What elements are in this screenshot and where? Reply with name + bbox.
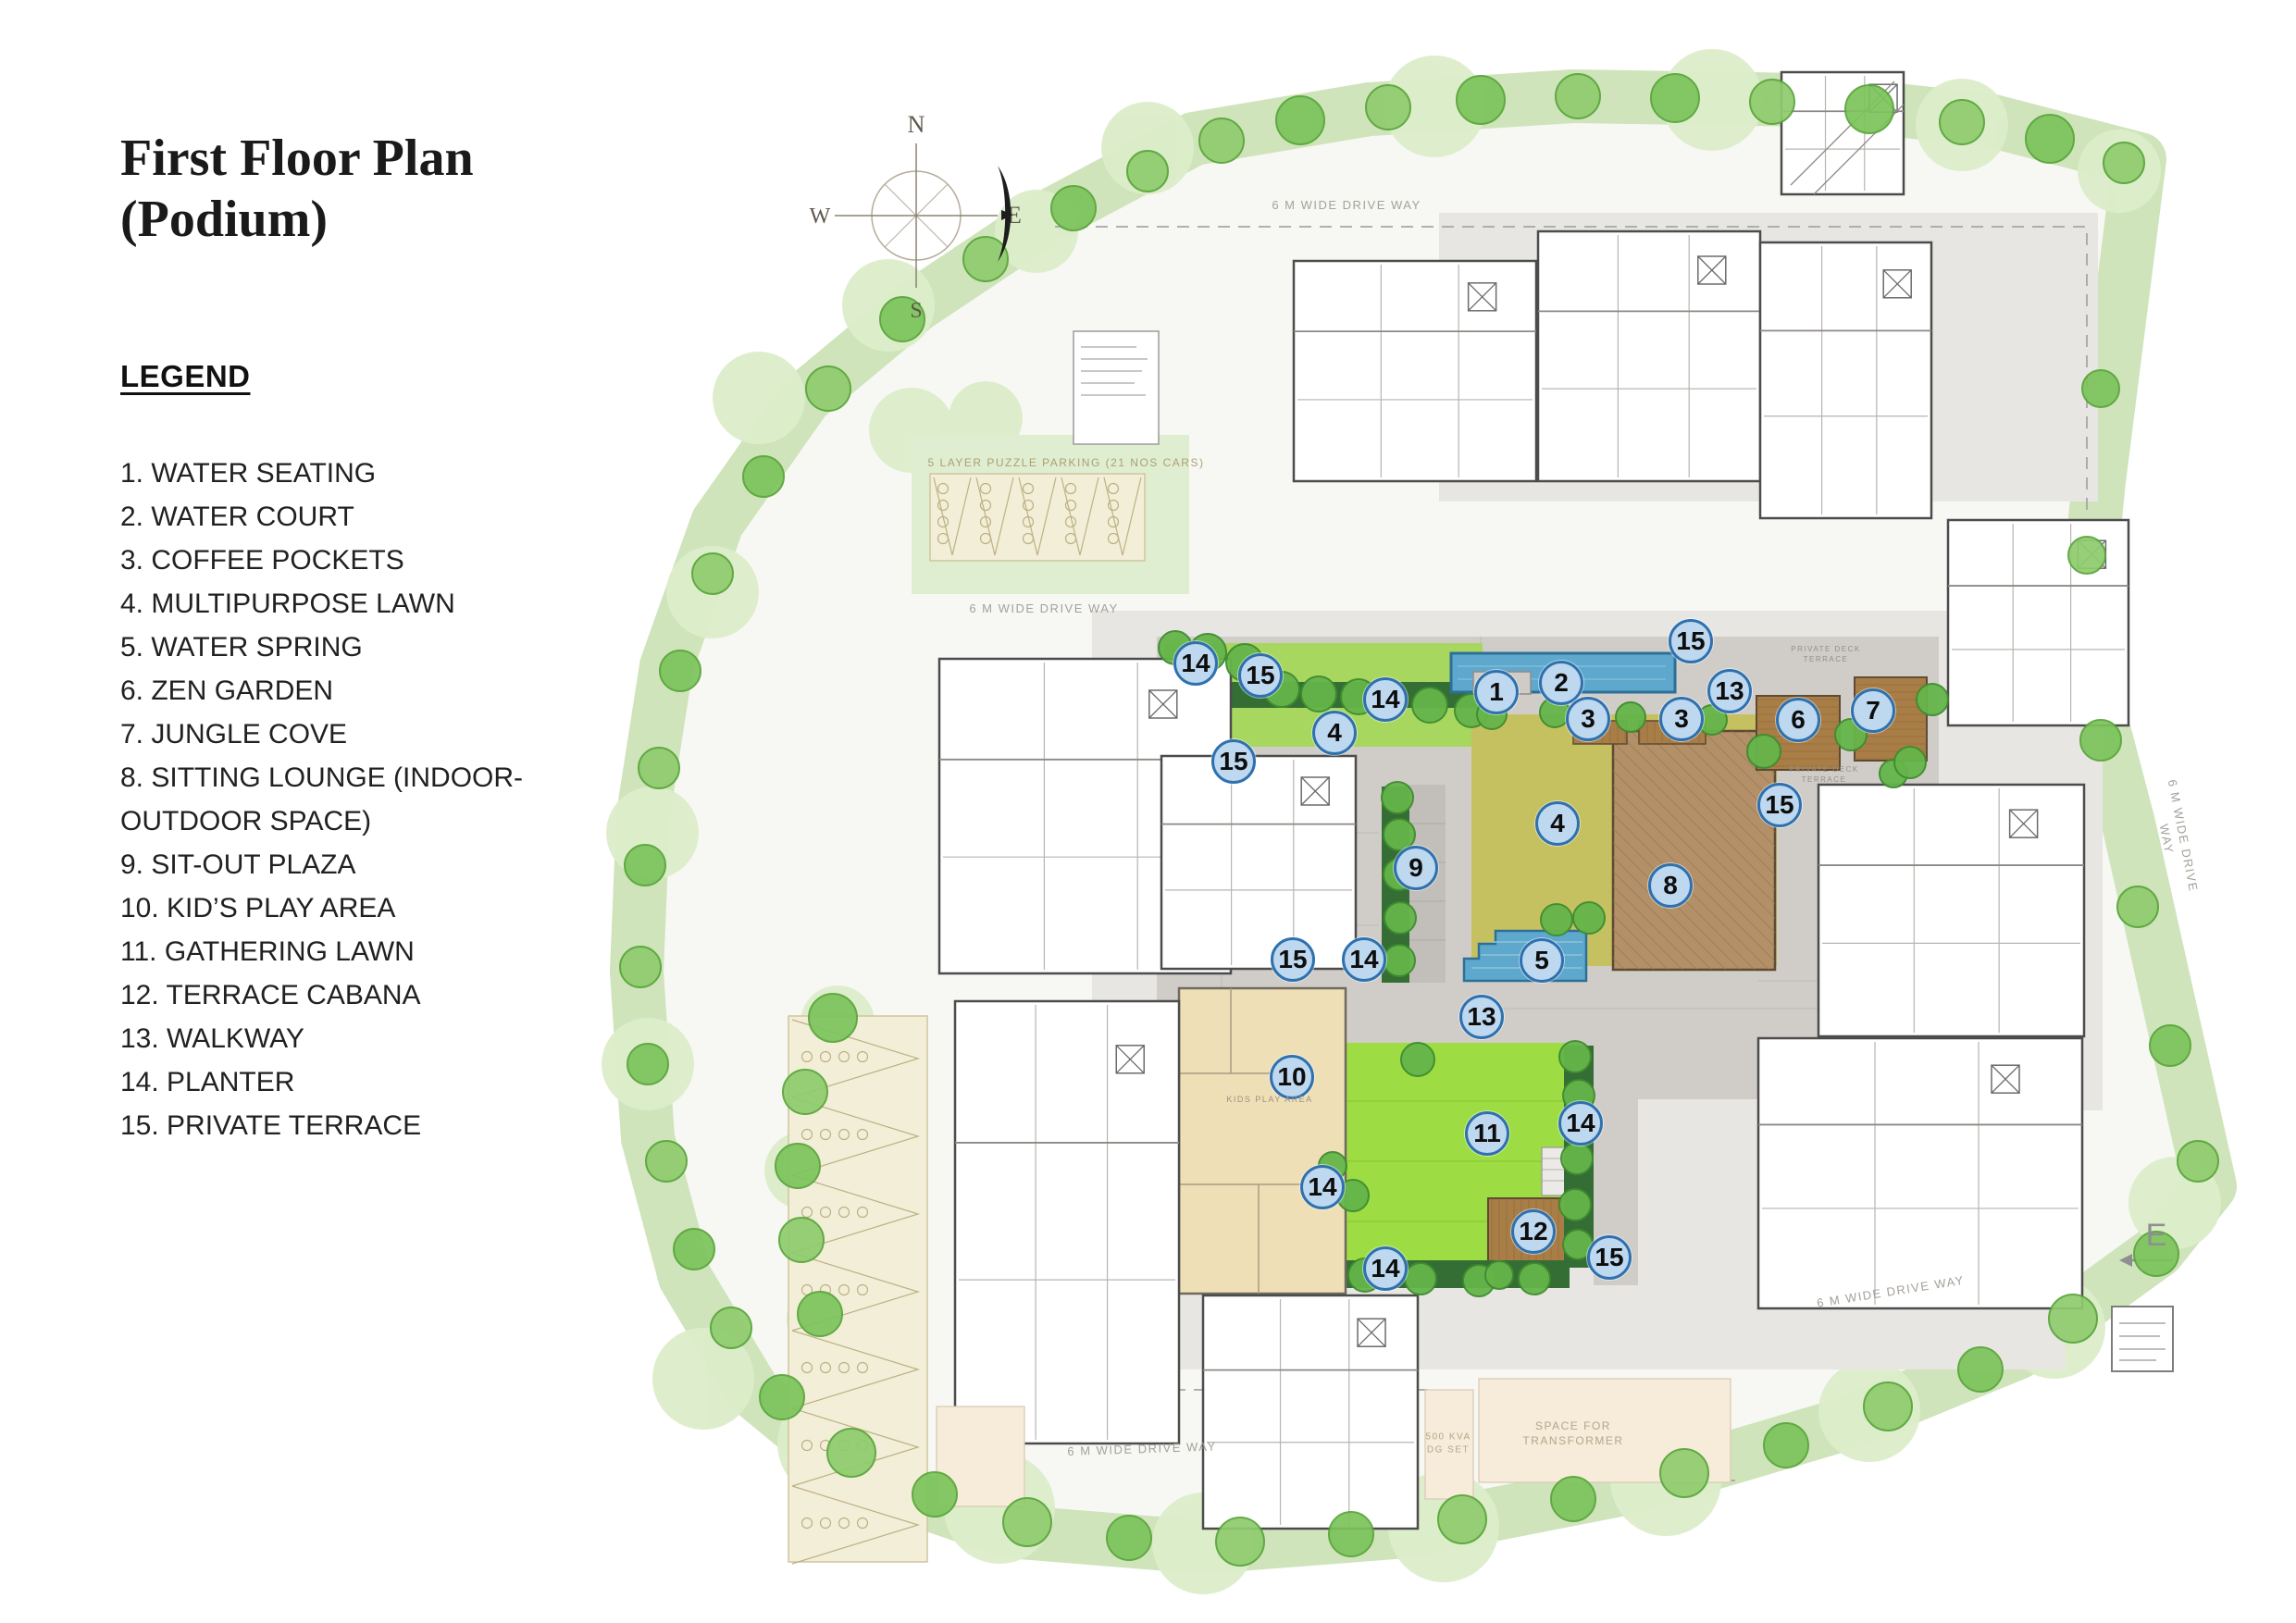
legend-item: 2. WATER COURT	[120, 495, 566, 539]
sitting-lounge-deck	[1613, 731, 1775, 970]
legend-item: 9. SIT-OUT PLAZA	[120, 843, 566, 886]
compass-w: W	[810, 204, 831, 229]
legend-item: 3. COFFEE POCKETS	[120, 539, 566, 582]
legend-item: 10. KID’S PLAY AREA	[120, 886, 566, 930]
legend-item: 15. PRIVATE TERRACE	[120, 1104, 566, 1147]
compass-n: N	[908, 111, 925, 138]
legend-list: 1. WATER SEATING2. WATER COURT3. COFFEE …	[120, 452, 566, 1147]
floor-plan-page: N S W E First Floor Plan(Podium) LEGEND …	[0, 0, 2296, 1623]
legend-item: 11. GATHERING LAWN	[120, 930, 566, 973]
legend-item: 14. PLANTER	[120, 1060, 566, 1104]
text-column: First Floor Plan(Podium) LEGEND 1. WATER…	[120, 128, 602, 1147]
legend-item: 7. JUNGLE COVE	[120, 712, 566, 756]
legend-heading: LEGEND	[120, 359, 602, 394]
legend: LEGEND 1. WATER SEATING2. WATER COURT3. …	[120, 359, 602, 1147]
legend-item: 8. SITTING LOUNGE (INDOOR-OUTDOOR SPACE)	[120, 756, 566, 843]
legend-item: 5. WATER SPRING	[120, 626, 566, 669]
compass-s: S	[910, 299, 922, 323]
legend-item: 6. ZEN GARDEN	[120, 669, 566, 712]
title-line1: First Floor Plan	[120, 130, 474, 187]
legend-item: 12. TERRACE CABANA	[120, 973, 566, 1017]
legend-item: 4. MULTIPURPOSE LAWN	[120, 582, 566, 626]
title-line2: (Podium)	[120, 191, 328, 248]
kids-play-area	[1179, 988, 1346, 1294]
legend-item: 1. WATER SEATING	[120, 452, 566, 495]
legend-item: 13. WALKWAY	[120, 1017, 566, 1060]
water-seating	[1473, 672, 1531, 694]
page-title: First Floor Plan(Podium)	[120, 128, 602, 250]
